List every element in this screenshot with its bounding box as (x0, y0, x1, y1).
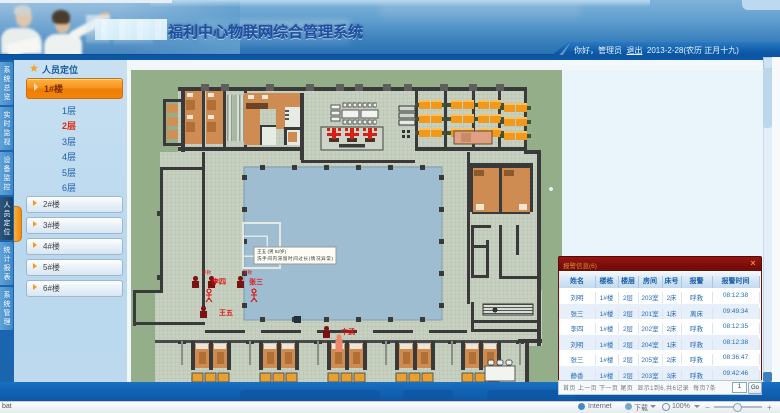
svg-text:呼救: 呼救 (243, 269, 252, 276)
svg-text:中武: 中武 (341, 327, 355, 336)
svg-text:王五 (男 82岁): 王五 (男 82岁) (257, 248, 287, 255)
svg-text:王五: 王五 (219, 309, 233, 317)
svg-text:洗手间内滞留时间过长(情况异常): 洗手间内滞留时间过长(情况异常) (257, 255, 333, 262)
svg-text:呼救: 呼救 (202, 269, 211, 276)
svg-text:张三: 张三 (249, 277, 263, 286)
svg-text:李四: 李四 (211, 277, 226, 286)
